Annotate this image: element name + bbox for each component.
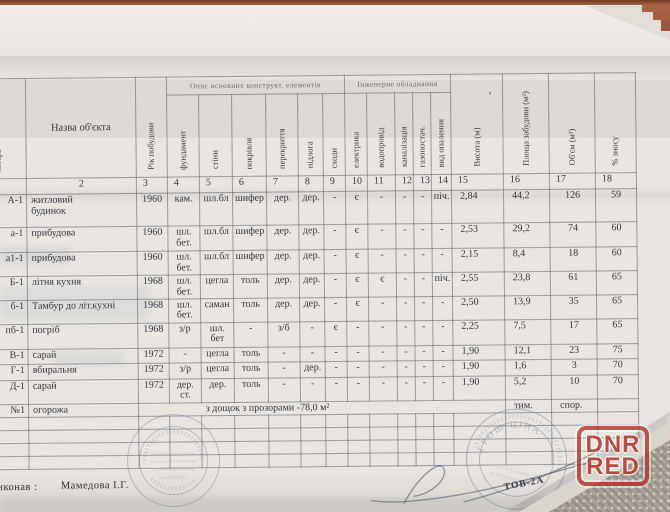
empty-cell [301,453,326,466]
table-cell: - [325,377,347,401]
table-cell: 18 [550,247,596,271]
table-cell: 1972 [138,348,169,363]
table-cell: житловий будинок [27,193,137,227]
column-number: 18 [595,173,636,189]
empty-cell [0,456,29,470]
table-cell: толь [234,362,268,378]
round-stamp-icon [121,411,226,512]
column-number: 17 [549,173,595,189]
table-cell: - [368,191,396,224]
table-cell: шл. бет [201,322,234,347]
table-cell: 1,6 [505,359,551,375]
group-header: Опис основних конструкт. елементів [166,75,344,95]
table-cell: є [325,321,347,346]
table-cell: Б-1 [0,276,28,300]
table-cell: шл.бл [199,192,232,225]
empty-cell [269,414,301,427]
empty-cell [0,430,29,444]
header-row: літераНазва об'єктаРік побудовиОпис осно… [0,73,636,97]
table-cell: сарай [28,348,138,364]
table-cell: шл. бет. [168,226,200,251]
column-number: 12 [395,175,413,191]
table-cell: - [433,296,453,320]
empty-cell [301,414,326,427]
column-header-label: водопровід [376,127,386,167]
empty-cell [301,440,326,453]
table-cell: дер. [201,378,234,402]
table-cell: - [347,346,369,361]
table-cell: - [300,321,325,346]
table-cell: - [396,273,414,297]
table-cell: пб-1 [0,324,28,350]
column-number: 3 [136,177,167,193]
table-cell: - [414,224,432,249]
column-header-label: % зносу [611,136,621,166]
table-cell: - [414,273,432,297]
column-number: 8 [298,176,323,192]
table-cell [598,398,639,411]
column-number: 13 [413,175,431,191]
table-cell: 2,25 [453,319,505,344]
table-cell: 2,84 [452,190,504,223]
photo-of-inventory-document: літераНазва об'єктаРік побудовиОпис осно… [0,0,670,512]
empty-cell [370,426,398,439]
column-header: покрівля [232,94,267,176]
table-cell: - [415,320,433,345]
table-cell: дер. [298,192,323,225]
table-cell: дер. ст. [169,378,201,402]
table-cell: - [415,360,433,376]
table-cell: 65 [596,271,637,295]
table-cell: дер. [299,274,324,298]
table-cell: 2,53 [452,223,504,248]
column-header-label: Площа забудови (м²) [521,92,531,167]
table-cell: піч. [432,190,452,223]
column-header: електрика [345,93,368,175]
executor-label: Виконав : [0,482,38,493]
column-header-label: вид опалення [436,118,446,167]
table-cell: є [368,273,396,297]
table-cell: В-1 [0,349,28,365]
table-cell: 1968 [138,299,169,323]
table-cell: - [414,191,432,224]
table-cell: - [369,320,397,345]
table-cell: з/б [268,321,300,346]
empty-cell [235,428,269,441]
column-header: Висота (м) [450,74,503,174]
table-cell: 75 [597,343,638,358]
empty-cell [269,453,301,466]
table-cell: 1968 [138,323,169,348]
table-cell: дер. [300,361,325,377]
watermark-line2: RED [586,456,640,478]
table-cell: дер. [267,250,299,274]
table-cell: 3 [551,359,597,375]
table-cell: 59 [596,189,637,222]
empty-cell [398,413,416,426]
empty-cell [348,427,370,440]
table-cell: - [369,296,397,320]
table-cell: - [324,273,346,297]
paper-top-edge [0,5,670,7]
table-cell: шл. бет. [168,275,200,299]
table-cell: Д-1 [0,380,29,405]
empty-cell [348,414,370,427]
pen-mark: ʼ [488,90,492,102]
table-cell: шл.бл [200,225,233,250]
table-cell: - [415,296,433,320]
column-header: перекриття [266,94,299,176]
table-cell: дер. [300,297,325,321]
table-cell: Тамбур до літ.кухні [28,299,138,324]
empty-cell [370,413,398,426]
document-content: літераНазва об'єктаРік побудовиОпис осно… [0,0,670,512]
column-number: 6 [232,176,266,192]
table-cell: 74 [550,222,596,247]
empty-cell [269,427,301,440]
column-header: % зносу [594,73,636,173]
table-cell: - [300,377,325,401]
empty-cell [416,413,434,426]
wood-corner-step [642,5,670,12]
column-header: каналізація [395,93,414,175]
table-cell: - [369,360,397,376]
table-cell: Г-1 [0,364,28,381]
table-cell: з/р [169,322,201,347]
table-cell: 8,4 [504,247,550,271]
table-cell: - [414,249,432,273]
column-header: водопровід [367,93,396,175]
column-header: Площа забудови (м²) [502,73,549,173]
table-cell: 2,50 [453,295,505,319]
table-cell: шифер [232,192,266,225]
column-header: Назва об'єкта [25,77,136,178]
empty-cell [398,426,416,439]
table-cell: - [397,345,415,360]
table-cell: 17 [551,319,597,344]
table-cell: 65 [597,294,638,318]
table-cell: 12,1 [505,344,551,359]
table-cell: - [432,248,452,272]
table-cell: 70 [597,358,638,374]
table-cell: №1 [0,404,29,418]
table-cell: є [346,249,368,273]
table-cell: 2,55 [452,272,504,296]
column-header-label: підлога [306,141,316,168]
column-header-label: літера [0,149,3,171]
empty-cell [235,441,269,454]
table-cell: 1,90 [453,375,505,399]
column-header-label: фундамент [178,130,188,170]
table-cell: сарай [28,379,138,404]
table-cell: шифер [233,225,267,250]
column-header-label: стіни [211,150,221,169]
table-cell: 1960 [136,193,167,226]
table-cell: дер. [299,225,324,250]
table-cell: - [347,321,369,346]
table-cell: толь [234,347,268,362]
table-cell: цегла [201,347,234,362]
table-cell: а-1 [0,227,27,253]
dnr-red-watermark: DNR RED [577,426,649,486]
column-header-label: каналізація [399,127,409,168]
table-cell: - [268,346,300,361]
column-header: Рік побудови [135,77,167,177]
table-cell: А-1 [0,194,27,228]
table-cell: саман [201,298,234,322]
empty-cell [416,426,434,439]
column-number: 4 [167,177,199,193]
table-cell: 1,90 [453,344,505,359]
table-cell: толь [234,298,268,322]
table-cell: шл. бет. [169,298,201,322]
table-cell: - [268,361,300,377]
table-cell: 126 [550,189,596,222]
table-cell: - [397,320,415,345]
table-cell: є [347,297,369,321]
column-header: сходи [323,93,346,175]
table-cell: 61 [550,271,596,295]
column-header-label: Рік побудови [147,123,157,170]
table-cell: - [325,361,347,377]
wood-corner-step [661,20,670,31]
wood-corner-step [653,12,670,20]
table-cell: - [396,249,414,273]
table-cell: прибудова [27,251,137,276]
table-cell: - [433,320,453,345]
empty-cell [598,411,639,424]
table-cell: - [347,377,369,401]
table-cell: погріб [28,323,138,349]
table-cell: - [325,346,347,361]
table-cell: а1-1 [0,252,27,277]
table-cell: - [369,345,397,360]
empty-cell [0,443,29,457]
table-cell: - [415,345,433,360]
table-cell: 65 [597,318,638,343]
table-cell: - [347,361,369,377]
executor-name: Мамедова І.Г. [61,480,129,492]
table-cell: - [433,360,453,376]
table-cell: - [324,249,346,273]
table-cell: прибудова [27,226,137,252]
table-cell: - [323,191,345,224]
column-header: газопостач. [413,93,432,175]
table-cell: 7,5 [505,319,551,344]
empty-cell [301,427,326,440]
empty-cell [434,413,454,426]
table-cell: б-1 [0,300,28,325]
empty-cell [235,454,269,467]
table-cell: - [433,376,453,400]
column-number: 14 [431,174,451,190]
table-cell: цегла [201,362,234,378]
table-cell: 23,8 [504,271,550,295]
table-cell: - [433,345,453,360]
column-number: 9 [323,175,345,191]
table-cell: 10 [551,375,597,399]
table-cell: піч. [432,272,452,296]
table-cell: 1960 [137,226,168,251]
table-cell: дер. [268,297,300,321]
column-number: 15 [451,174,503,190]
table-cell: - [324,224,346,249]
table-cell: кам. [167,193,199,226]
table-cell: 29,2 [504,222,550,247]
table-cell: - [368,224,396,249]
table-cell: - [234,322,268,347]
table-cell: дер. [266,192,298,225]
table-cell: шл.бл [200,250,233,274]
table-cell: цегла [200,274,233,298]
empty-cell [434,426,454,439]
table-cell: вбиральня [28,363,138,380]
table-cell: - [396,224,414,249]
table-cell: - [432,223,452,248]
table-cell: - [369,376,397,400]
table-cell: 1972 [138,379,169,403]
empty-cell [0,417,29,431]
table-cell: - [397,296,415,320]
table-cell: є [346,273,368,297]
column-number: 1 [0,178,27,195]
empty-cell [326,427,348,440]
empty-cell [326,414,348,427]
table-cell: дер. [267,225,299,250]
column-header-label: сходи [329,148,339,169]
table-cell: - [300,346,325,361]
table-cell: літня кухня [27,275,137,300]
column-number: 11 [367,175,395,191]
table-cell: 5,2 [505,375,551,399]
table-cell: 23 [551,344,597,359]
table-cell: 60 [596,222,637,247]
table-cell: є [346,224,368,249]
table-cell: дер. [299,250,324,274]
column-header: фундамент [167,95,200,177]
table-cell: толь [234,378,268,402]
table-cell: - [397,360,415,376]
column-header: підлога [298,94,324,176]
table-cell: 44,2 [504,189,550,222]
table-cell: 1,90 [453,359,505,375]
column-header-label: перекриття [277,128,287,169]
table-cell: - [325,297,347,321]
table-cell: 60 [596,247,637,271]
table-cell: толь [233,274,267,298]
column-number: 2 [26,177,136,194]
empty-cell [269,440,301,453]
table-head: літераНазва об'єктаРік побудовиОпис осно… [0,73,637,195]
column-number: 7 [266,176,298,192]
table-cell: 2,15 [452,248,504,272]
column-header: літера [0,78,26,179]
column-header-label: електрика [351,132,361,168]
table-cell: дер. [267,274,299,298]
table-cell: є [346,191,368,224]
column-header-label: Об'єм (м³) [567,129,577,166]
table-cell: 1972 [138,363,169,379]
column-header: Об'єм (м³) [548,73,595,173]
table-cell: 1968 [137,275,168,299]
column-header: стіни [199,94,233,176]
column-number: 16 [503,173,549,189]
table-cell: - [268,377,300,401]
table-cell: - [397,376,415,400]
table-cell: шл. бет. [168,251,200,275]
table-cell: 35 [551,295,597,319]
table-cell: шифер [233,250,267,274]
table-cell: з/р [169,362,201,378]
table-cell: 70 [597,374,638,398]
column-number: 10 [345,175,367,191]
table-cell: 13,9 [505,295,551,319]
column-header-label: газопостач. [417,126,427,167]
table-cell: 1960 [137,251,168,275]
column-number: 5 [199,176,232,192]
table-cell: - [396,191,414,224]
column-header-label: покрівля [244,137,254,169]
column-header: вид опалення [431,92,452,174]
table-cell: - [415,376,433,400]
empty-cell [235,415,269,428]
column-header-label: Висота (м) [472,128,482,167]
group-header: Інженерне обладнання [344,74,450,93]
table-cell: - [169,347,201,362]
table-cell: - [368,249,396,273]
